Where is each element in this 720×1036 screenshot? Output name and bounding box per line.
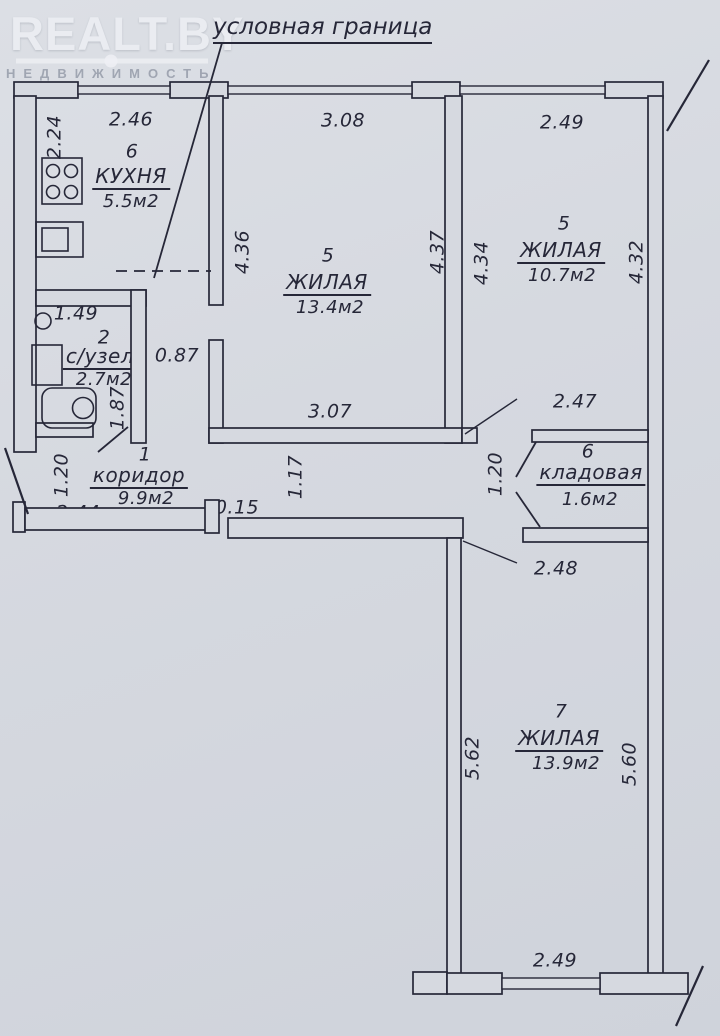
stove-icon xyxy=(42,158,82,204)
plan-drawing xyxy=(0,0,720,1036)
conditional-boundary-line xyxy=(116,43,222,278)
window xyxy=(78,86,605,94)
washbasin-icon xyxy=(35,313,51,329)
bathtub-icon xyxy=(42,388,96,428)
floor-plan: REALT.BY НЕДВИЖИМОСТЬ xyxy=(0,0,720,1036)
sink-icon xyxy=(36,222,83,257)
interior-walls xyxy=(13,96,688,994)
window xyxy=(502,978,600,989)
wall-break-marks xyxy=(5,60,709,1026)
leader-lines xyxy=(463,399,517,563)
